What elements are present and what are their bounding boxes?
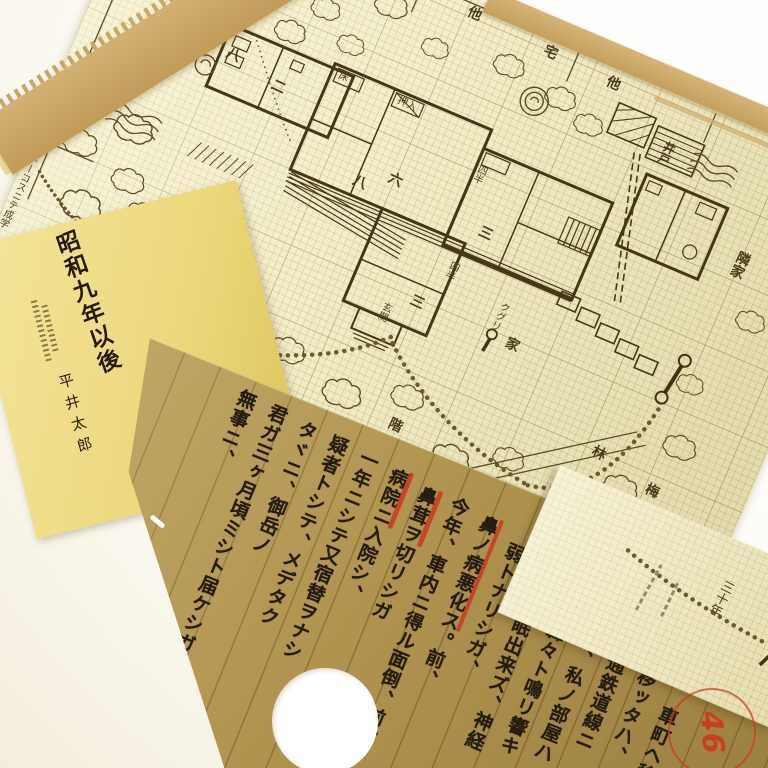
neighbor-buildings-row <box>546 291 669 375</box>
cover-name: 平井太郎 <box>54 371 98 461</box>
punched-hole <box>272 668 378 768</box>
stamp-number: 46 <box>693 709 730 756</box>
photo-background: 他宅他山他宅家階林梅墨他隣家井戸クグリ玄関トーコスニテ成学八二六八三四半三四半押… <box>0 0 768 768</box>
veranda-lines <box>275 110 602 328</box>
slope-hatching <box>187 29 324 191</box>
cover-title: 昭和九年以後 <box>46 226 127 380</box>
